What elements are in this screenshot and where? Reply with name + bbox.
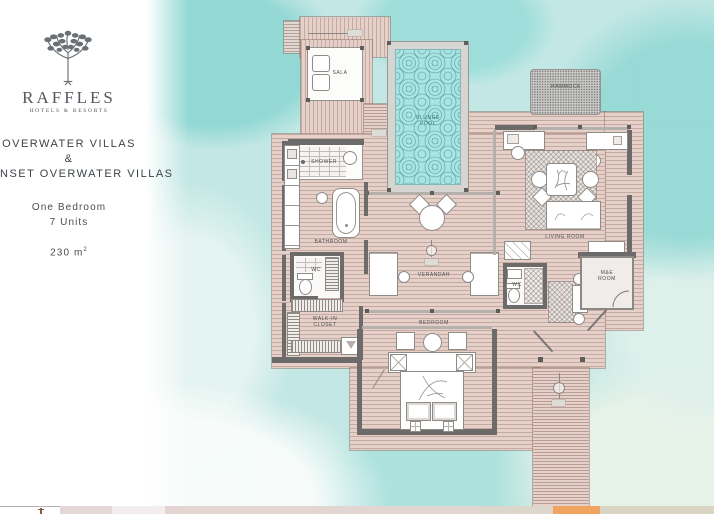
corner-post: [430, 309, 434, 313]
filmstrip-segment: [480, 506, 553, 514]
brand-subtitle: HOTELS & RESORTS: [0, 108, 138, 114]
stair-tag: [372, 130, 386, 136]
sun-lounger: [370, 253, 397, 295]
filmstrip-segment: [112, 506, 165, 514]
room-label-shower: SHOWER: [311, 159, 337, 165]
shower-drain: [301, 160, 305, 164]
coffee-table: [547, 164, 576, 195]
floor-lamp: [444, 422, 453, 431]
room-label-wc-right: WC: [512, 282, 521, 288]
side-table: [463, 272, 473, 282]
sofa-plant-sketch: [547, 202, 600, 229]
bathtub-basin: [337, 193, 355, 233]
wc-shower-area: [525, 269, 542, 303]
corner-post: [387, 41, 391, 45]
corner-post: [430, 191, 434, 195]
nightstand: [397, 333, 414, 349]
filmstrip-segment: [60, 506, 112, 514]
floor-lamp: [411, 422, 420, 431]
toilet-cistern: [298, 274, 312, 279]
corner-post: [306, 46, 310, 50]
villa-title-amp: &: [0, 153, 138, 165]
sun-lounger: [471, 253, 498, 295]
wc-sink: [508, 270, 521, 278]
corner-post: [365, 309, 369, 313]
corner-post: [627, 125, 631, 129]
corner-post: [538, 357, 543, 362]
verandah-table: [420, 206, 444, 230]
armchair: [583, 172, 598, 187]
side-table: [399, 272, 409, 282]
bedroom-count: One Bedroom: [0, 202, 138, 213]
bed-leaf-sketch: [401, 372, 463, 402]
sink-basin: [288, 150, 296, 158]
toilet-bowl: [300, 280, 311, 294]
room-label-bathroom: BATHROOM: [315, 239, 348, 245]
corner-post: [306, 98, 310, 102]
area-value: 230 m2: [0, 247, 138, 258]
room-label-me-room: M&EROOM: [598, 270, 616, 282]
wall-segment: [340, 252, 344, 302]
planter: [574, 314, 584, 324]
sala-daybed-cushion: [313, 75, 329, 90]
dimension-tag: [552, 400, 565, 406]
bath-stool: [317, 193, 327, 203]
brochure-page: PLUNGEPOOL HAMMOCK SALA SHOWER BATHROOM …: [0, 0, 714, 514]
room-label-verandah: VERANDAH: [418, 272, 450, 278]
level-marker: [427, 246, 436, 255]
room-label-wc-left: WC: [311, 267, 320, 273]
wall-segment: [357, 329, 362, 432]
entry-ladder: [284, 21, 301, 53]
area-number: 230 m: [50, 247, 83, 258]
luggage-bench: [505, 242, 530, 259]
area-exponent: 2: [83, 247, 87, 253]
villa-title-line1: OVERWATER VILLAS: [0, 138, 138, 150]
wall-segment: [290, 252, 294, 302]
south-parapet-wall: [272, 357, 362, 363]
dimension-tag: [348, 30, 362, 36]
wall-segment: [627, 130, 632, 175]
bathtub-drain: [345, 224, 348, 227]
wall-segment: [492, 329, 497, 432]
corner-post: [464, 41, 468, 45]
armchair: [532, 172, 547, 187]
wall-segment: [286, 141, 364, 145]
closet-rack: [292, 341, 340, 352]
villa-title-line2: NSET OVERWATER VILLAS: [0, 168, 174, 180]
desk-accessory: [508, 135, 518, 143]
closet-rack: [292, 300, 342, 311]
room-label-sala: SALA: [333, 70, 348, 76]
info-panel: RAFFLES HOTELS & RESORTS OVERWATER VILLA…: [0, 0, 188, 514]
bench-mark: [346, 341, 356, 349]
dimension-tag: [425, 259, 438, 265]
corner-post: [580, 357, 585, 362]
wall-segment: [627, 195, 632, 255]
entry-mat: [549, 282, 575, 322]
wall-segment: [543, 263, 547, 309]
pillow: [433, 403, 456, 420]
wall-segment: [364, 182, 368, 216]
sala-daybed-cushion: [313, 56, 329, 71]
sink-basin: [288, 170, 296, 178]
nightstand: [449, 333, 466, 349]
wall-segment: [282, 303, 286, 359]
sofa: [547, 202, 600, 229]
wall-segment: [290, 252, 344, 256]
hammock: [531, 70, 600, 114]
console-accessory: [614, 137, 621, 144]
window-line: [362, 326, 492, 329]
wc-shelf: [326, 258, 338, 290]
window-line: [535, 127, 630, 130]
brand-name: RAFFLES: [0, 88, 138, 108]
filmstrip-segment: [0, 506, 60, 514]
window-line: [493, 130, 496, 255]
wall-segment: [357, 429, 497, 435]
pillow: [407, 403, 430, 420]
bed: [401, 372, 463, 429]
toilet-bowl: [509, 289, 519, 302]
corner-post: [533, 125, 537, 129]
wall-segment: [503, 263, 547, 267]
dimension-line: [308, 33, 352, 34]
wall-segment: [503, 305, 547, 309]
raffles-tree-logo: [32, 28, 104, 86]
filmstrip-segment: [165, 506, 480, 514]
round-table: [424, 334, 441, 351]
bathroom-vanity-counter: [285, 146, 299, 248]
filmstrip-segment: [600, 506, 714, 514]
room-label-plunge-pool: PLUNGEPOOL: [416, 115, 440, 127]
flower-sketch: [547, 164, 576, 195]
room-label-walkin-closet: WALK-INCLOSET: [313, 316, 338, 328]
door-swing: [612, 290, 630, 308]
corner-post: [496, 309, 500, 313]
room-label-living-room: LIVING ROOM: [545, 234, 584, 240]
corner-post: [496, 191, 500, 195]
desk-chair: [512, 147, 524, 159]
bench-cushion: [457, 355, 472, 370]
room-label-hammock: HAMMOCK: [551, 84, 581, 90]
corner-post: [578, 125, 582, 129]
wall-segment: [495, 125, 535, 130]
unit-count: 7 Units: [0, 217, 138, 228]
corner-post: [360, 46, 364, 50]
shower-head: [344, 152, 356, 164]
level-marker: [554, 383, 564, 393]
wall-segment: [364, 240, 368, 274]
filmstrip-tree-mark: [38, 509, 44, 510]
bench-cushion: [391, 355, 406, 370]
filmstrip-segment-orange: [553, 506, 600, 514]
wall-segment: [282, 255, 286, 301]
console-table: [587, 133, 627, 149]
corner-post: [360, 98, 364, 102]
